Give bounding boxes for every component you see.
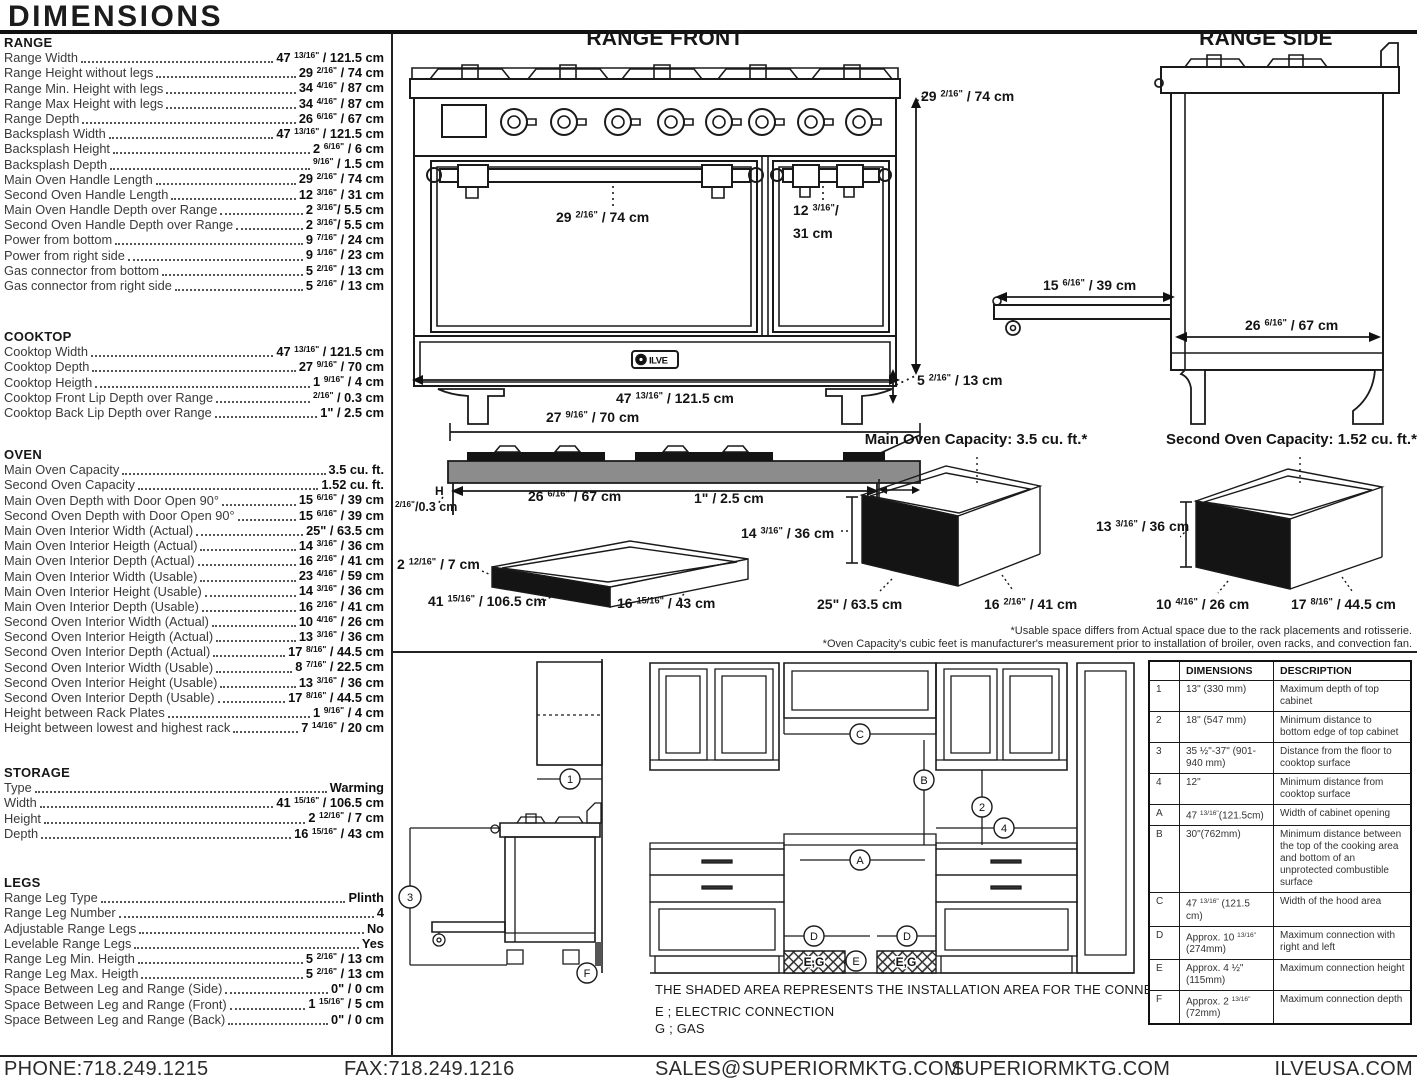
leader-dots (81, 61, 273, 63)
leader-dots (175, 289, 303, 291)
height-dimension-arrow (911, 91, 929, 375)
cooktop-front-lip-label: 2/16"/0.3 cm (395, 500, 457, 514)
leader-dots (138, 962, 303, 964)
main-oven-width-label: 25" / 63.5 cm (817, 596, 902, 612)
row-id: E (1149, 959, 1180, 990)
row-description: Minimum distance to bottom edge of top c… (1274, 712, 1412, 743)
leader-dots (82, 122, 295, 124)
second-handle-label-1: 12 3/16"/ (793, 202, 839, 218)
spec-label: Main Oven Handle Length (4, 173, 153, 187)
cooktop-back-lip-label: 1" / 2.5 cm (694, 490, 764, 506)
spec-label: Main Oven Capacity (4, 463, 119, 477)
leader-dots (95, 386, 310, 388)
spec-label: Width (4, 796, 37, 810)
install-side-diagram: 1 3 F (395, 655, 610, 987)
spec-label: Main Oven Depth with Door Open 90° (4, 494, 219, 508)
side-legs (1181, 370, 1383, 424)
leader-dots (162, 274, 303, 276)
row-dimension: Approx. 10 13/16" (274mm) (1180, 926, 1274, 959)
spec-label: Second Oven Handle Length (4, 188, 168, 202)
table-row: E Approx. 4 ½" (115mm) Maximum connectio… (1149, 959, 1411, 990)
spec-row: Range Leg Type Plinth (4, 890, 384, 905)
spec-section-oven: OVEN Main Oven Capacity 3.5 cu. ft. Seco… (4, 448, 384, 735)
spec-label: Space Between Leg and Range (Front) (4, 998, 227, 1012)
range-front-heading: RANGE FRONT (400, 27, 930, 51)
row-dimension: Approx. 4 ½" (115mm) (1180, 959, 1274, 990)
leader-dots (113, 152, 310, 154)
row-description: Maximum connection height (1274, 959, 1412, 990)
section-title: OVEN (4, 448, 384, 462)
spec-label: Backsplash Width (4, 127, 106, 141)
spec-label: Range Width (4, 51, 78, 65)
leg-height-arrow (889, 369, 915, 404)
vertical-divider (391, 33, 393, 1056)
marker-A: A (856, 855, 864, 867)
leader-dots (196, 534, 303, 536)
spec-column: RANGE Range Width 47 13/16" / 121.5 cm R… (4, 0, 384, 1050)
spec-label: Range Max Height with legs (4, 97, 163, 111)
spec-label: Main Oven Interior Width (Actual) (4, 524, 193, 538)
spec-section-cooktop: COOKTOP Cooktop Width 47 13/16" / 121.5 … (4, 330, 384, 420)
spec-value: 0" / 0 cm (331, 1013, 384, 1027)
col-description: DESCRIPTION (1274, 661, 1412, 681)
spec-value: 7 14/16" / 20 cm (301, 718, 384, 735)
leader-dots (91, 355, 273, 357)
leader-dots (138, 488, 319, 490)
second-oven-width-label: 10 4/16" / 26 cm (1156, 596, 1249, 612)
range-front-diagram: ILVE (400, 55, 930, 435)
spec-value: 1" / 2.5 cm (320, 406, 384, 420)
footnote-1: *Usable space differs from Actual space … (712, 625, 1412, 638)
leader-dots (200, 549, 295, 551)
spec-row: Range Leg Number 4 (4, 905, 384, 920)
leader-dots (101, 901, 346, 903)
dimensions-table-wrap: DIMENSIONS DESCRIPTION 1 13" (330 mm) Ma… (1148, 660, 1412, 1025)
spec-label: Second Oven Interior Depth (Usable) (4, 691, 215, 705)
spec-label: Height between lowest and highest rack (4, 721, 230, 735)
spec-label: Main Oven Interior Depth (Usable) (4, 600, 199, 614)
table-row: F Approx. 2 13/16" (72mm) Maximum connec… (1149, 990, 1411, 1024)
footer-divider (0, 1055, 1417, 1057)
footer-email: SALES@SUPERIORMKTG.COM (655, 1058, 961, 1080)
table-row: C 47 13/16" (121.5 cm) Width of the hood… (1149, 893, 1411, 926)
spec-row: Space Between Leg and Range (Front) 1 15… (4, 996, 384, 1011)
marker-C: C (856, 729, 864, 741)
spec-label: Cooktop Front Lip Depth over Range (4, 391, 213, 405)
spec-label: Range Leg Min. Heigth (4, 952, 135, 966)
gas-note: G ; GAS (655, 1021, 705, 1036)
leader-dots (119, 916, 374, 918)
row-id: F (1149, 990, 1180, 1024)
leader-dots (230, 1008, 306, 1010)
main-oven-handle (427, 165, 763, 198)
front-leg-height-label: 5 2/16" / 13 cm (917, 372, 1002, 388)
leader-dots (156, 76, 295, 78)
spec-label: Range Depth (4, 112, 79, 126)
spec-label: Depth (4, 827, 38, 841)
second-oven-depth-label: 17 8/16" / 44.5 cm (1291, 596, 1396, 612)
leader-dots (222, 504, 296, 506)
main-oven-height-label: 14 3/16" / 36 cm (741, 525, 834, 541)
spec-label: Second Oven Interior Heigth (Actual) (4, 630, 213, 644)
width-dimension-arrow (412, 375, 900, 385)
spec-row: Range Leg Max. Heigth 5 2/16" / 13 cm (4, 966, 384, 981)
electric-note: E ; ELECTRIC CONNECTION (655, 1004, 834, 1019)
row-dimension: 47 13/16" (121.5 cm) (1180, 893, 1274, 926)
footnote-2: *Oven Capacity's cubic feet is manufactu… (712, 638, 1412, 651)
leader-dots (109, 137, 274, 139)
leader-dots (228, 1023, 328, 1025)
spec-value: 16 15/16" / 43 cm (294, 824, 384, 841)
row-dimension: 12" (1180, 774, 1274, 805)
row-dimension: 35 ½"-37" (901-940 mm) (1180, 743, 1274, 774)
spec-label: Gas connector from bottom (4, 264, 159, 278)
leader-dots (141, 977, 302, 979)
row-dimension: 30"(762mm) (1180, 826, 1274, 893)
leader-dots (215, 416, 318, 418)
footer-fax: FAX:718.249.1216 (344, 1058, 515, 1080)
spec-row: Height between lowest and highest rack 7… (4, 720, 384, 735)
spec-label: Cooktop Back Lip Depth over Range (4, 406, 212, 420)
row-description: Minimum distance between the top of the … (1274, 826, 1412, 893)
main-oven-capacity-title: Main Oven Capacity: 3.5 cu. ft.* (845, 431, 1107, 448)
install-note: THE SHADED AREA REPRESENTS THE INSTALLAT… (655, 982, 1207, 997)
cooktop-width-label: 27 9/16" / 70 cm (546, 409, 639, 425)
spec-value: 5 2/16" / 13 cm (306, 964, 384, 981)
spec-label: Main Oven Interior Height (Usable) (4, 585, 202, 599)
marker-E: E (852, 956, 859, 968)
spec-section-range: RANGE Range Width 47 13/16" / 121.5 cm R… (4, 36, 384, 293)
spec-label: Main Oven Handle Depth over Range (4, 203, 217, 217)
main-oven-height-dim (846, 497, 858, 563)
spec-label: Backsplash Height (4, 142, 110, 156)
row-id: 1 (1149, 681, 1180, 712)
spec-label: Power from bottom (4, 233, 112, 247)
leader-dots (198, 564, 296, 566)
row-description: Distance from the floor to cooktop surfa… (1274, 743, 1412, 774)
dimensions-spec-sheet: DIMENSIONS RANGE Range Width 47 13/16" /… (0, 0, 1417, 1080)
spec-label: Power from right side (4, 249, 125, 263)
spec-value: 1 15/16" / 5 cm (308, 994, 384, 1011)
spec-row: Cooktop Front Lip Depth over Range 2/16"… (4, 390, 384, 405)
spec-label: Second Oven Capacity (4, 478, 135, 492)
leader-dots (202, 610, 296, 612)
spec-label: Range Leg Number (4, 906, 116, 920)
spec-value: 3.5 cu. ft. (329, 463, 384, 477)
leader-dots (40, 806, 274, 808)
row-id: 2 (1149, 712, 1180, 743)
marker-3: 3 (407, 892, 413, 904)
spec-row: Main Oven Capacity 3.5 cu. ft. (4, 462, 384, 477)
leader-dots (216, 671, 292, 673)
spec-section-storage: STORAGE Type Warming Width 41 15/16" / 1… (4, 766, 384, 841)
marker-B: B (920, 775, 927, 787)
spec-row: Depth 16 15/16" / 43 cm (4, 826, 384, 841)
leader-dots (128, 259, 303, 261)
leader-dots (220, 686, 295, 688)
table-header-row: DIMENSIONS DESCRIPTION (1149, 661, 1411, 681)
front-height-label: 29 2/16" / 74 cm (921, 88, 1014, 104)
spec-label: Height between Rack Plates (4, 706, 165, 720)
main-handle-label: 29 2/16" / 74 cm (556, 209, 649, 225)
spec-label: Cooktop Heigth (4, 376, 92, 390)
drawer-width-label: 41 15/16" / 106.5 cm (428, 593, 546, 609)
marker-D-right: D (903, 931, 911, 943)
side-depth-label: 26 6/16" / 67 cm (1245, 317, 1338, 333)
leader-dots (115, 243, 303, 245)
spec-row: Second Oven Depth with Door Open 90° 15 … (4, 508, 384, 523)
spec-label: Adjustable Range Legs (4, 922, 136, 936)
leader-dots (110, 168, 310, 170)
spec-row: Adjustable Range Legs No (4, 920, 384, 935)
second-handle-label-2: 31 cm (793, 225, 833, 241)
leader-dots (218, 701, 286, 703)
second-oven-height-dim (1180, 502, 1192, 567)
spec-value: 2/16" / 0.3 cm (313, 388, 384, 405)
second-oven-capacity-title: Second Oven Capacity: 1.52 cu. ft.* (1166, 431, 1416, 448)
marker-F: F (584, 968, 591, 980)
leader-dots (216, 640, 296, 642)
spec-label: Main Oven Interior Depth (Actual) (4, 554, 195, 568)
leader-dots (168, 716, 310, 718)
brand-text: ILVE (649, 356, 668, 367)
footer-ilve: ILVEUSA.COM (1274, 1058, 1413, 1080)
spec-label: Range Height without legs (4, 66, 153, 80)
table-row: 4 12" Minimum distance from cooktop surf… (1149, 774, 1411, 805)
row-id: 3 (1149, 743, 1180, 774)
front-width-label: 47 13/16" / 121.5 cm (616, 390, 734, 406)
spec-row: Cooktop Back Lip Depth over Range 1" / 2… (4, 405, 384, 420)
row-description: Maximum depth of top cabinet (1274, 681, 1412, 712)
table-row: B 30"(762mm) Minimum distance between th… (1149, 826, 1411, 893)
section-title: STORAGE (4, 766, 384, 780)
marker-D-left: D (810, 931, 818, 943)
row-dimension: 18" (547 mm) (1180, 712, 1274, 743)
spec-label: Range Min. Height with legs (4, 82, 163, 96)
leader-dots (171, 198, 295, 200)
open-door (993, 297, 1171, 335)
spec-label: Type (4, 781, 32, 795)
leader-dots (44, 822, 305, 824)
leader-dots (205, 595, 296, 597)
row-dimension: 13" (330 mm) (1180, 681, 1274, 712)
row-description: Width of the hood area (1274, 893, 1412, 926)
section-title: LEGS (4, 876, 384, 890)
leader-dots (166, 107, 295, 109)
spec-label: Space Between Leg and Range (Side) (4, 982, 222, 996)
second-oven-handle (771, 165, 891, 197)
table-row: A 47 13/16"(121.5cm) Width of cabinet op… (1149, 805, 1411, 826)
storage-drawer-diagram (480, 535, 770, 625)
drawer-depth-label: 16 15/16" / 43 cm (617, 595, 715, 611)
table-row: 1 13" (330 mm) Maximum depth of top cabi… (1149, 681, 1411, 712)
spec-label: Main Oven Interior Heigth (Actual) (4, 539, 197, 553)
spec-label: Cooktop Depth (4, 360, 89, 374)
h-marker: H (435, 484, 444, 498)
eg-label-right: E,G (896, 955, 917, 969)
leader-dots (166, 92, 295, 94)
main-oven-capacity-diagram (840, 455, 1070, 605)
spec-value: No (367, 922, 384, 936)
depth-arrow (1175, 332, 1381, 342)
row-dimension: 47 13/16"(121.5cm) (1180, 805, 1274, 826)
table-row: 3 35 ½"-37" (901-940 mm) Distance from t… (1149, 743, 1411, 774)
footer-phone: PHONE:718.249.1215 (4, 1058, 208, 1080)
leader-dots (213, 655, 285, 657)
row-id: B (1149, 826, 1180, 893)
row-id: D (1149, 926, 1180, 959)
spec-label: Gas connector from right side (4, 279, 172, 293)
footer-site: SUPERIORMKTG.COM (951, 1058, 1170, 1080)
spec-label: Second Oven Interior Width (Actual) (4, 615, 209, 629)
side-door-open-label: 15 6/16" / 39 cm (1043, 277, 1136, 293)
leader-dots (122, 473, 325, 475)
spec-label: Second Oven Handle Depth over Range (4, 218, 233, 232)
spec-row: Space Between Leg and Range (Back) 0" / … (4, 1012, 384, 1027)
table-row: 2 18" (547 mm) Minimum distance to botto… (1149, 712, 1411, 743)
spec-label: Levelable Range Legs (4, 937, 131, 951)
dimensions-table: DIMENSIONS DESCRIPTION 1 13" (330 mm) Ma… (1148, 660, 1412, 1025)
spec-value: 4 (377, 906, 384, 920)
second-oven-height-label: 13 3/16" / 36 cm (1096, 518, 1189, 534)
row-description: Width of cabinet opening (1274, 805, 1412, 826)
row-description: Minimum distance from cooktop surface (1274, 774, 1412, 805)
ilve-logo-badge: ILVE (632, 351, 678, 368)
spec-label: Second Oven Interior Height (Usable) (4, 676, 217, 690)
row-id: C (1149, 893, 1180, 926)
drawer-height-label: 2 12/16" / 7 cm (397, 556, 480, 572)
leader-dots (236, 228, 303, 230)
range-side-diagram (985, 35, 1417, 435)
spec-section-legs: LEGS Range Leg Type Plinth Range Leg Num… (4, 876, 384, 1027)
leader-dots (238, 519, 296, 521)
spec-label: Height (4, 812, 41, 826)
leader-dots (92, 370, 295, 372)
horizontal-divider (391, 651, 1417, 653)
leader-dots (220, 213, 303, 215)
spec-label: Main Oven Interior Width (Usable) (4, 570, 197, 584)
leader-dots (156, 183, 296, 185)
row-id: 4 (1149, 774, 1180, 805)
marker-2: 2 (979, 802, 985, 814)
leader-dots (233, 731, 298, 733)
spec-label: Range Leg Type (4, 891, 98, 905)
table-row: D Approx. 10 13/16" (274mm) Maximum conn… (1149, 926, 1411, 959)
inner-width-arrow (451, 486, 879, 496)
leader-dots (212, 625, 296, 627)
spec-label: Backsplash Depth (4, 158, 107, 172)
spec-label: Range Leg Max. Heigth (4, 967, 138, 981)
row-dimension: Approx. 2 13/16" (72mm) (1180, 990, 1274, 1024)
spec-row: Gas connector from right side 5 2/16" / … (4, 278, 384, 293)
row-description: Maximum connection depth (1274, 990, 1412, 1024)
leader-dots (216, 401, 310, 403)
spec-label: Second Oven Depth with Door Open 90° (4, 509, 235, 523)
leader-dots (41, 837, 291, 839)
eg-label-left: E,G (804, 955, 825, 969)
cooktop-inner-label: 26 6/16" / 67 cm (528, 488, 621, 504)
col-blank (1149, 661, 1180, 681)
spec-label: Second Oven Interior Width (Usable) (4, 661, 213, 675)
marker-1: 1 (567, 774, 573, 786)
main-oven-depth-label: 16 2/16" / 41 cm (984, 596, 1077, 612)
capacity-footnotes: *Usable space differs from Actual space … (712, 625, 1412, 651)
row-description: Maximum connection with right and left (1274, 926, 1412, 959)
control-knobs (501, 109, 881, 135)
spec-label: Second Oven Interior Depth (Actual) (4, 645, 210, 659)
leader-dots (139, 932, 364, 934)
spec-label: Space Between Leg and Range (Back) (4, 1013, 225, 1027)
spec-label: Cooktop Width (4, 345, 88, 359)
door-open-arrow (995, 292, 1175, 302)
row-id: A (1149, 805, 1180, 826)
second-oven-capacity-diagram (1180, 455, 1417, 605)
spec-value: Plinth (348, 891, 384, 905)
marker-4: 4 (1001, 823, 1007, 835)
leader-dots (200, 580, 295, 582)
spec-value: 5 2/16" / 13 cm (306, 276, 384, 293)
install-front-diagram: C B 2 4 A (645, 655, 1145, 987)
col-dimensions: DIMENSIONS (1180, 661, 1274, 681)
spec-value: 15 6/16" / 39 cm (299, 506, 384, 523)
